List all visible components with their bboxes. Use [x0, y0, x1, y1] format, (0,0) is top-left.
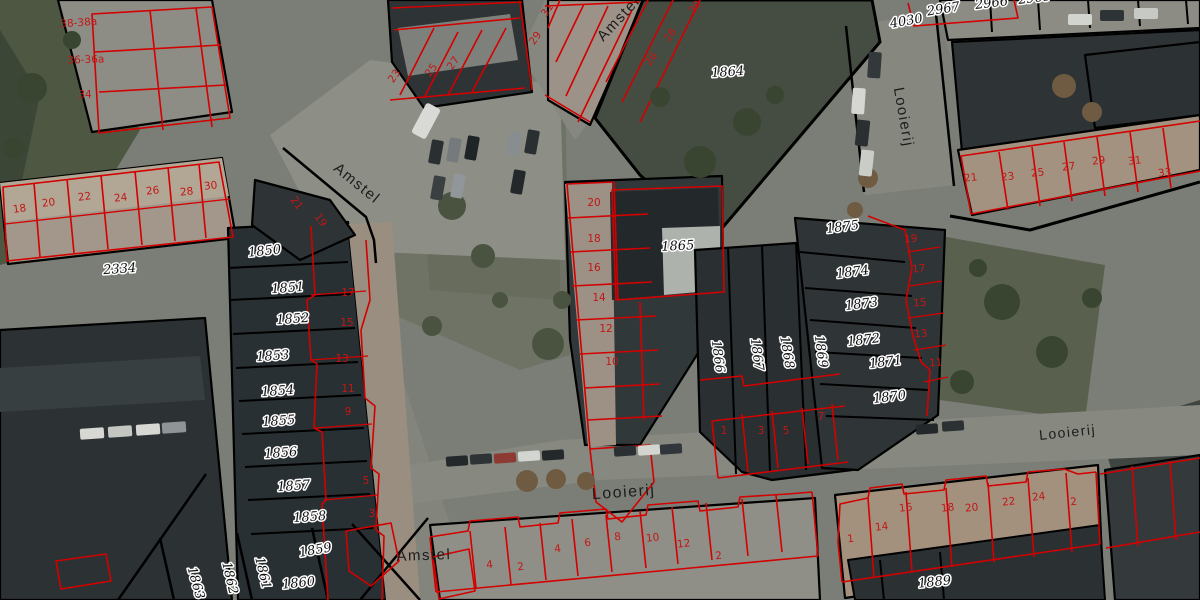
parcel-id-label: 1864: [711, 64, 745, 81]
house-number-label: 19: [904, 233, 918, 246]
house-number-label: 11: [929, 357, 943, 370]
house-number-label: 5: [783, 425, 790, 437]
house-number-label: 22: [1001, 495, 1016, 508]
house-number-label: 36-36a: [67, 53, 104, 66]
aerial-map-view[interactable]: AmstelAmstelAmstelLooierijLooierijLooier…: [0, 0, 1200, 600]
house-number-label: 2: [517, 561, 525, 574]
house-number-label: 3: [369, 508, 376, 520]
house-number-label: 18: [587, 233, 600, 245]
house-number-label: 12: [599, 323, 612, 335]
house-number-label: 10: [645, 531, 660, 544]
house-number-label: 21: [963, 171, 978, 184]
house-number-label: 16: [587, 262, 601, 274]
house-number-label: 20: [587, 197, 600, 209]
house-number-label: 13: [335, 353, 348, 365]
house-number-label: 15: [340, 317, 353, 329]
parcel-id-label: 1865: [661, 238, 695, 255]
house-number-label: 33: [1157, 166, 1172, 179]
house-number-label: 8: [614, 531, 622, 544]
house-number-label: 2: [715, 550, 723, 563]
house-number-label: 31: [1127, 154, 1142, 167]
house-number-label: 17: [341, 287, 354, 299]
house-number-label: 10: [605, 356, 618, 368]
house-number-label: 9: [345, 406, 352, 418]
house-number-label: 23: [1000, 170, 1015, 183]
parcel-id-label: 1856: [264, 445, 298, 462]
house-number-label: 1: [847, 533, 855, 546]
house-number-label: 18: [940, 501, 955, 514]
house-number-label: 2: [1070, 496, 1078, 509]
parcel-id-label: 1853: [256, 348, 290, 365]
house-number-label: 14: [592, 292, 606, 304]
house-number-label: 13: [914, 328, 928, 341]
house-number-label: 5: [363, 475, 370, 487]
street-name-label: Amstel: [396, 546, 451, 565]
house-number-label: 1: [721, 425, 728, 437]
house-number-label: 16: [898, 501, 913, 514]
house-number-label: 18: [12, 202, 27, 216]
parcel-id-label: 1858: [293, 509, 327, 526]
house-number-label: 17: [912, 263, 926, 276]
house-number-label: 20: [964, 501, 979, 514]
house-number-label: 12: [676, 537, 691, 550]
house-number-label: 7: [818, 411, 825, 423]
house-number-label: 26: [145, 184, 160, 197]
parcel-id-label: 1857: [277, 478, 312, 495]
house-number-label: 14: [874, 520, 889, 533]
house-number-label: 30: [203, 179, 218, 192]
parcel-id-label: 1852: [276, 311, 310, 328]
parcel-id-label: 1851: [271, 280, 305, 297]
parcel-id-label: 2334: [102, 261, 137, 278]
house-number-label: 34: [78, 89, 92, 101]
parcel-id-label: 1854: [261, 383, 295, 400]
map-canvas: AmstelAmstelAmstelLooierijLooierijLooier…: [0, 0, 1200, 600]
house-number-label: 11: [341, 383, 354, 395]
parcel-id-label: 1855: [262, 413, 296, 430]
house-number-label: 28: [179, 185, 194, 198]
house-number-label: 29: [1091, 154, 1106, 167]
house-number-label: 24: [113, 191, 128, 204]
house-number-label: 15: [913, 297, 927, 310]
house-number-label: 3: [758, 425, 765, 437]
house-number-label: 27: [1061, 160, 1076, 173]
house-number-label: 25: [1030, 166, 1045, 179]
house-number-label: 22: [77, 190, 92, 204]
house-number-label: 20: [41, 196, 56, 210]
house-number-label: 24: [1031, 490, 1046, 503]
